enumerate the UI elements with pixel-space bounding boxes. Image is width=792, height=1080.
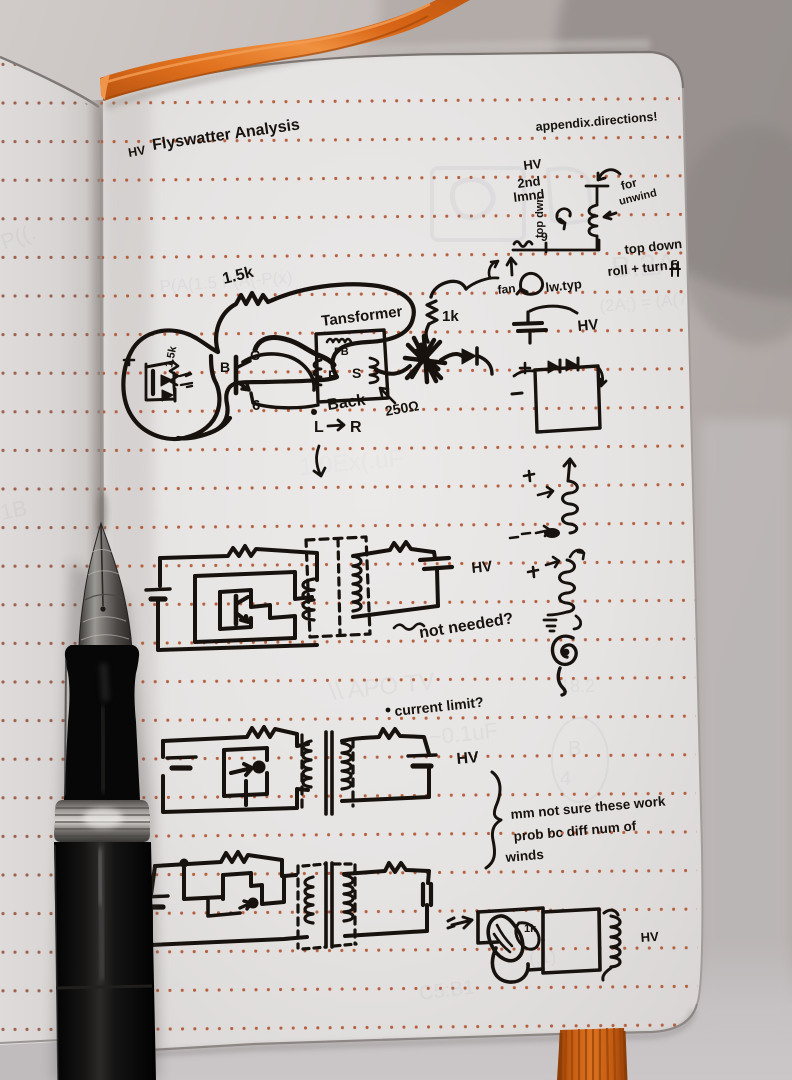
svg-text:S: S	[352, 365, 361, 381]
svg-text:4: 4	[560, 768, 571, 790]
svg-text:HV: HV	[523, 156, 543, 173]
svg-text:1k: 1k	[442, 308, 459, 325]
svg-text:R: R	[350, 419, 362, 436]
svg-text:HV: HV	[640, 929, 659, 945]
svg-text:HV: HV	[577, 316, 599, 335]
svg-text:B: B	[568, 738, 581, 760]
svg-text:FB: FB	[334, 346, 349, 358]
svg-text:HV: HV	[456, 749, 480, 768]
svg-text:L: L	[314, 419, 324, 436]
svg-text:B: B	[220, 359, 230, 375]
svg-text:fan: fan	[497, 281, 516, 297]
svg-text:1k: 1k	[524, 923, 537, 935]
svg-text:9: 9	[541, 230, 548, 244]
svg-text:HV: HV	[471, 558, 494, 577]
svg-text:P: P	[328, 367, 337, 383]
